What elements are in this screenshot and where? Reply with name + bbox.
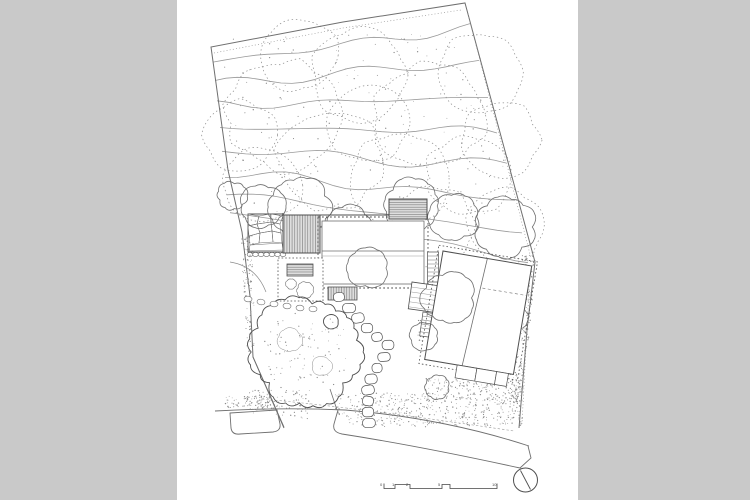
scale-label-10: 10 xyxy=(492,483,496,487)
scale-label-5: 5 xyxy=(438,483,440,487)
pond-stone xyxy=(323,314,338,328)
driveway-walls xyxy=(253,357,337,427)
scale-label-0: 0 xyxy=(380,483,382,487)
scale-bar xyxy=(384,484,497,489)
scale-label-2: 2 xyxy=(406,483,408,487)
site-plan-page: 0 1 2 5 10 xyxy=(0,0,750,500)
site-plan-drawing xyxy=(0,0,750,500)
wood-deck-roof xyxy=(283,215,320,253)
scale-label-1: 1 xyxy=(392,483,394,487)
roof-monitor xyxy=(389,199,427,219)
annex-pavilion xyxy=(278,258,323,301)
north-arrow-icon xyxy=(514,468,538,492)
